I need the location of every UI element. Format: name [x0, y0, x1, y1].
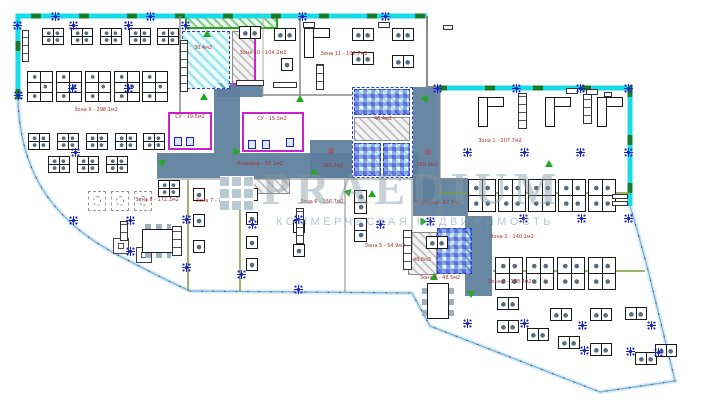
door-swing-icon [296, 95, 304, 102]
grid-marker-icon [124, 84, 133, 93]
grid-marker-icon [654, 348, 663, 357]
grid-marker-icon [624, 84, 633, 93]
grid-marker-icon [580, 346, 589, 355]
grid-marker-icon [576, 84, 585, 93]
cabinet [273, 82, 297, 88]
area-label: 30.4м2 [194, 46, 212, 52]
desk-cluster-4 [106, 156, 128, 173]
l-shaped-desk [545, 97, 571, 127]
grid-marker-icon [124, 21, 133, 30]
desk-cluster-6 [85, 71, 111, 102]
desk-cluster-6 [142, 71, 168, 102]
grid-marker-icon [624, 214, 633, 223]
cabinet [172, 226, 182, 256]
grid-marker-icon [578, 321, 587, 330]
door-swing-icon [421, 218, 428, 226]
floor-plan: Зона 9 - 298.1м2Зона 10 - 104.2м2Зона 11… [0, 0, 705, 406]
area-label: 169.3м2 [416, 163, 437, 169]
desk-pair [239, 26, 261, 39]
area-label: Зона 11 - 106.7м2 [321, 52, 368, 58]
door-swing-icon [203, 30, 211, 37]
desk-pair [497, 320, 519, 333]
cabinet [518, 93, 527, 129]
door-swing-icon [344, 186, 355, 197]
cabinet [586, 89, 598, 95]
desk-single [281, 58, 293, 71]
grid-marker-icon [519, 214, 528, 223]
grid-marker-icon [126, 216, 135, 225]
cabinet [604, 92, 612, 97]
round-meeting-table [111, 191, 129, 211]
grid-marker-icon [576, 148, 585, 157]
area-label: Зона 1 - 207.7м2 [478, 139, 522, 145]
door-swing-icon [158, 160, 166, 167]
desk-cluster-4 [157, 28, 179, 45]
door-swing-icon [200, 93, 208, 100]
area-label: Зона 6 - 156.7м2 [300, 200, 344, 206]
cabinet [583, 94, 592, 124]
grid-marker-icon [624, 148, 633, 157]
desk-cluster-4 [558, 179, 586, 212]
door-swing-icon [545, 160, 553, 167]
desk-pair [497, 297, 519, 310]
cabinet [403, 230, 412, 270]
area-label: Зона 4 - 48.5м2 [420, 276, 460, 282]
area-label: ② [328, 148, 335, 157]
desk-pair [558, 336, 580, 349]
grid-marker-icon [248, 220, 257, 229]
area-label: 46.4м2 [374, 117, 392, 123]
cabinet [236, 80, 264, 86]
grid-marker-icon [433, 84, 442, 93]
cabinet [378, 22, 390, 28]
desk-single [293, 244, 305, 257]
grid-marker-icon [647, 321, 656, 330]
door-swing-icon [421, 95, 428, 103]
area-label: 169.7м2 [322, 164, 343, 170]
grid-marker-icon [520, 319, 529, 328]
grid-marker-icon [68, 84, 77, 93]
desk-cluster-4 [71, 28, 93, 45]
desk-cluster-4 [557, 257, 585, 290]
grid-marker-icon [381, 12, 390, 21]
area-label: СУ - 15.3м2 [257, 117, 287, 123]
desk-cluster-4 [48, 156, 70, 173]
cabinet [303, 22, 315, 28]
area-label: 48.6м2 [413, 258, 431, 264]
grid-marker-icon [181, 21, 190, 30]
l-shaped-desk [478, 97, 504, 127]
grid-marker-icon [520, 148, 529, 157]
desk-cluster-4 [129, 28, 151, 45]
desk-cluster-4 [42, 28, 64, 45]
desk-pair [590, 308, 612, 321]
desk-pair [352, 28, 374, 41]
desk-cluster-4 [468, 179, 496, 212]
desk-cluster-4 [100, 28, 122, 45]
door-swing-icon [234, 148, 241, 156]
area-label: Зона 10 - 104.2м2 [240, 51, 287, 57]
grid-marker-icon [71, 148, 80, 157]
desk-pair [274, 28, 296, 41]
grid-marker-icon [577, 214, 586, 223]
conference-table [142, 229, 174, 253]
desk-single [193, 214, 205, 227]
door-swing-icon [467, 291, 475, 298]
grid-marker-icon [182, 215, 191, 224]
area-label: Коридор - 67.1м2 [415, 201, 461, 207]
desk-single [193, 240, 205, 253]
desk-cluster-4 [115, 133, 137, 150]
area-label: Зона 7 - 77.9м2 [196, 199, 236, 205]
area-label: Зона 5 - 54.9м2 [365, 244, 405, 250]
desk-pair [625, 307, 647, 320]
grid-marker-icon [51, 12, 60, 21]
wc-fixture [286, 138, 294, 147]
round-meeting-table [88, 191, 106, 211]
grid-marker-icon [463, 319, 472, 328]
grid-marker-icon [298, 12, 307, 21]
grid-marker-icon [69, 21, 78, 30]
desk-single [246, 188, 258, 201]
desk-pair [354, 218, 367, 242]
grid-marker-icon [376, 220, 385, 229]
desk-cluster-4 [143, 133, 165, 150]
area-label: Зона 3 - 178.4м2 [488, 280, 532, 286]
desk-cluster-4 [28, 133, 50, 150]
desk-pair [392, 55, 414, 68]
desk-cluster-4 [86, 133, 108, 150]
area-label: Зона 8 - 172.3м2 [135, 198, 179, 204]
cabinet [180, 40, 188, 92]
door-swing-icon [368, 190, 376, 197]
wc-fixture [248, 140, 256, 149]
desk-cluster-4 [528, 179, 556, 212]
area-label: СУ - 19.5м2 [175, 115, 205, 121]
symbols-layer: Зона 9 - 298.1м2Зона 10 - 104.2м2Зона 11… [0, 0, 705, 406]
cabinet [316, 64, 324, 90]
desk-pair [392, 28, 414, 41]
wc-fixture [262, 140, 270, 149]
desk-cluster-6 [27, 71, 53, 102]
desk-cluster-4 [498, 179, 526, 212]
area-label: Зона 9 - 298.1м2 [74, 108, 118, 114]
desk-pair [590, 343, 612, 356]
door-swing-icon [310, 168, 318, 175]
desk-cluster-4 [158, 180, 180, 197]
desk-pair [426, 236, 448, 249]
cabinet [612, 201, 628, 206]
desk-pair [550, 308, 572, 321]
grid-marker-icon [182, 263, 191, 272]
wc-fixture [186, 137, 194, 146]
area-label: Коридор - 97.1м2 [237, 162, 283, 168]
grid-marker-icon [463, 148, 472, 157]
grid-marker-icon [237, 270, 246, 279]
grid-marker-icon [69, 216, 78, 225]
grid-marker-icon [626, 347, 635, 356]
conference-table [427, 283, 449, 319]
grid-marker-icon [294, 285, 303, 294]
area-label: ① [425, 149, 432, 158]
l-shaped-desk [597, 97, 623, 127]
grid-marker-icon [126, 247, 135, 256]
cabinet [22, 30, 29, 62]
wc-fixture [174, 137, 182, 146]
cabinet [296, 208, 304, 244]
desk-cluster-4 [77, 156, 99, 173]
cabinet [612, 194, 628, 199]
cabinet [443, 25, 453, 30]
desk-single [246, 258, 258, 271]
grid-marker-icon [294, 215, 303, 224]
desk-pair [354, 190, 367, 214]
grid-marker-icon [146, 12, 155, 21]
desk-single [246, 236, 258, 249]
grid-marker-icon [14, 91, 23, 100]
area-label: Зона 2 - 140.1м2 [490, 235, 534, 241]
grid-marker-icon [13, 21, 22, 30]
desk-pair [527, 328, 549, 341]
grid-marker-icon [512, 84, 521, 93]
desk-cluster-4 [588, 257, 616, 290]
